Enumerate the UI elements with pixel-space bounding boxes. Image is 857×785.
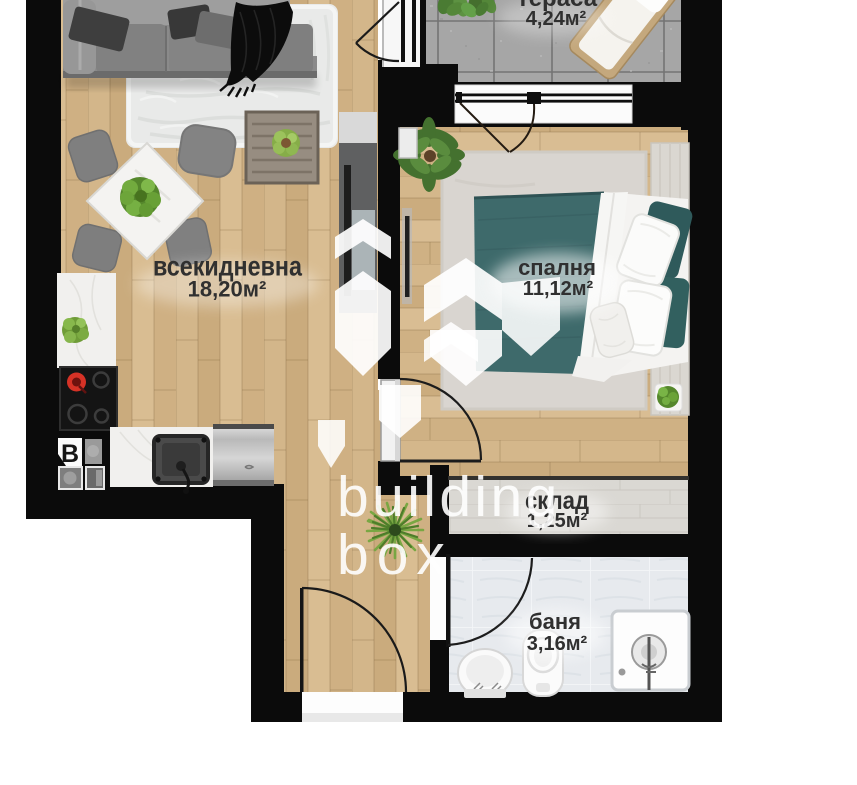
svg-text:спалня: спалня [518, 255, 596, 280]
svg-text:4,24м²: 4,24м² [526, 8, 587, 30]
svg-text:box: box [337, 523, 453, 587]
svg-text:11,12м²: 11,12м² [523, 278, 594, 300]
svg-text:баня: баня [529, 609, 581, 634]
svg-text:B: B [61, 440, 79, 468]
svg-text:3,16м²: 3,16м² [527, 633, 588, 655]
svg-text:18,20м²: 18,20м² [188, 277, 267, 302]
svg-text:building: building [337, 465, 561, 529]
